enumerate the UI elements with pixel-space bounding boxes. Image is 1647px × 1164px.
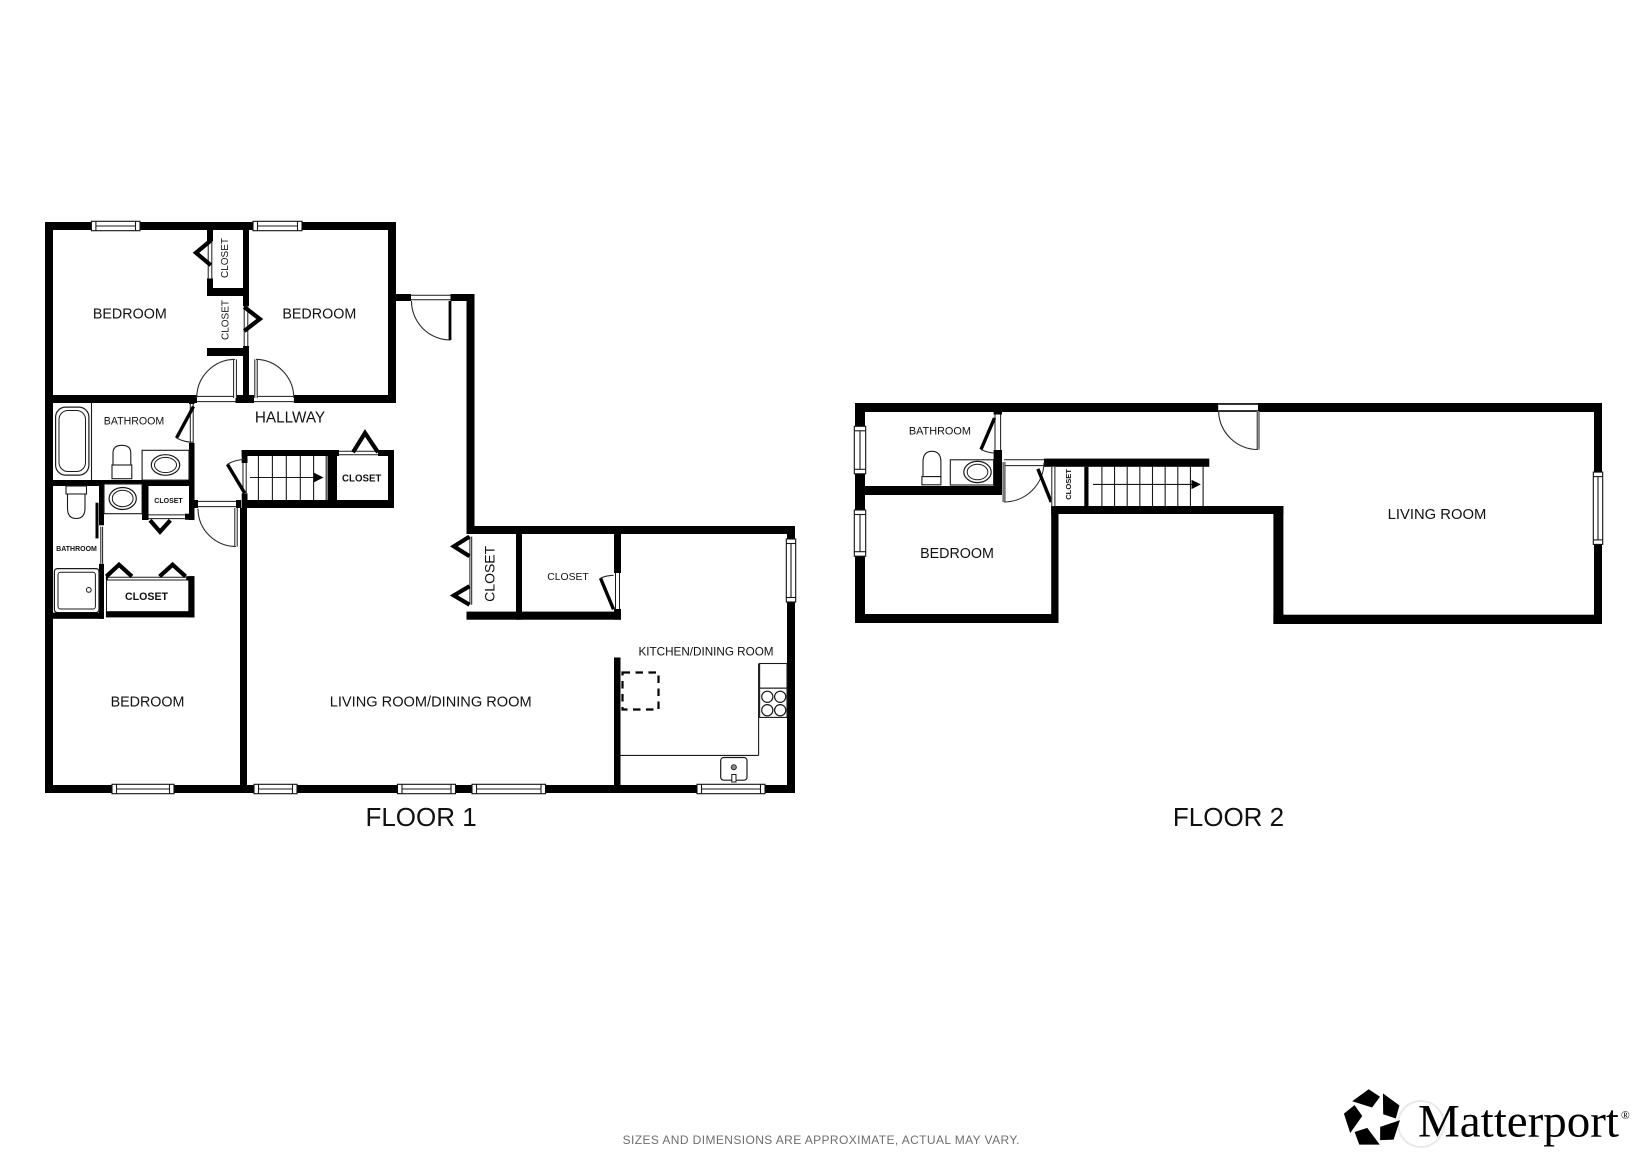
svg-text:BATHROOM: BATHROOM [56,546,97,553]
svg-text:LIVING ROOM/DINING ROOM: LIVING ROOM/DINING ROOM [330,695,532,711]
svg-text:BEDROOM: BEDROOM [111,695,185,711]
svg-text:CLOSET: CLOSET [342,473,381,484]
svg-text:FLOOR 2: FLOOR 2 [1173,802,1284,832]
svg-text:CLOSET: CLOSET [1064,469,1073,500]
svg-text:SIZES AND DIMENSIONS ARE APPRO: SIZES AND DIMENSIONS ARE APPROXIMATE, AC… [623,1133,1020,1147]
svg-text:CLOSET: CLOSET [220,238,231,278]
svg-text:KITCHEN/DINING ROOM: KITCHEN/DINING ROOM [638,645,773,658]
svg-text:®: ® [1621,1110,1630,1122]
svg-text:CLOSET: CLOSET [154,498,183,505]
svg-text:Matterport: Matterport [1418,1096,1619,1148]
svg-text:CLOSET: CLOSET [220,300,231,340]
svg-text:BEDROOM: BEDROOM [93,307,167,323]
svg-text:HALLWAY: HALLWAY [255,410,325,427]
svg-text:FLOOR 1: FLOOR 1 [365,802,476,832]
svg-text:BATHROOM: BATHROOM [909,426,971,438]
svg-text:CLOSET: CLOSET [547,572,589,583]
svg-text:BEDROOM: BEDROOM [920,546,994,562]
svg-text:CLOSET: CLOSET [125,591,168,603]
svg-text:BATHROOM: BATHROOM [104,416,164,428]
svg-text:CLOSET: CLOSET [482,545,498,601]
svg-text:BEDROOM: BEDROOM [282,307,356,323]
svg-text:LIVING ROOM: LIVING ROOM [1388,507,1487,523]
